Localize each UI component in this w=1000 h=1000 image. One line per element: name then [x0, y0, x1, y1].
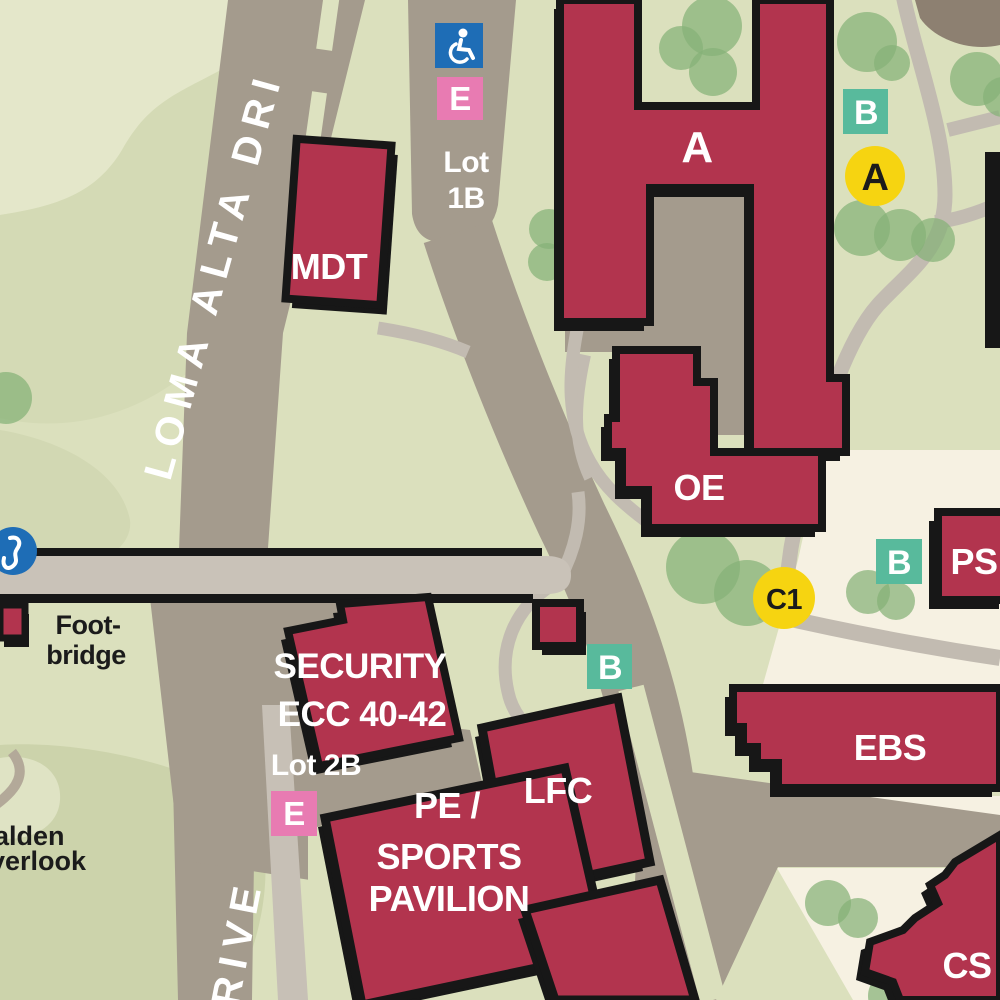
footbridge-rail-south [0, 594, 533, 603]
stop-c1-label: C1 [766, 584, 802, 616]
footbridge-label-2: bridge [46, 640, 126, 670]
building-partial-east [985, 152, 1000, 348]
tree [877, 582, 915, 620]
overlook-label-2: verlook [0, 846, 87, 876]
building-label-mdt: MDT [291, 246, 368, 287]
footbridge-rail-north [0, 548, 542, 556]
tree [838, 898, 878, 938]
footbridge-deck [0, 556, 571, 594]
building-label-security-2: ECC 40-42 [278, 695, 447, 734]
building-mdt [286, 139, 398, 315]
building-label-pavilion-2: SPORTS [376, 836, 521, 877]
stop-a-label: A [862, 157, 889, 199]
accessible-parking-badge [435, 23, 483, 68]
tree [874, 45, 910, 81]
permit-e-badge-lot2b: E [271, 791, 317, 836]
building-label-security-1: SECURITY [274, 647, 447, 686]
building-label-ebs: EBS [854, 727, 927, 768]
building-stub-west-body [0, 605, 25, 638]
building-label-lfc: LFC [524, 770, 593, 811]
building-label-a: A [681, 123, 712, 172]
building-stub-west [0, 605, 29, 647]
permit-e-label: E [449, 80, 471, 117]
stop-b-badge-north: B [843, 89, 888, 134]
stop-b-label: B [854, 94, 878, 132]
stop-a-badge: A [845, 146, 905, 206]
building-label-pavilion-3: PAVILION [369, 878, 530, 919]
tree [689, 48, 737, 96]
wheelchair-icon-head [459, 29, 468, 38]
campus-map[interactable]: MDT A OE PS EBS CS LFC SECURITY ECC 40-4… [0, 0, 1000, 1000]
lot-2b-label: Lot 2B [271, 749, 361, 782]
tree [911, 218, 955, 262]
building-label-ps: PS [950, 541, 997, 582]
stop-b-badge-center: B [587, 644, 632, 689]
stop-c1-badge: C1 [753, 567, 815, 629]
footbridge-label-1: Foot- [56, 610, 121, 640]
permit-e-label: E [283, 795, 305, 832]
lot-1b-label-1: Lot [443, 146, 489, 179]
stop-b-badge-east: B [876, 539, 922, 584]
permit-e-badge-lot1b: E [437, 77, 483, 120]
stop-b-label: B [598, 649, 622, 687]
stop-b-label: B [887, 544, 911, 582]
building-small-square [536, 603, 586, 655]
lot-1b-label-2: 1B [447, 182, 484, 215]
building-small-square-body [536, 603, 580, 646]
building-label-cs: CS [942, 945, 991, 986]
building-label-oe: OE [673, 467, 724, 508]
building-label-pavilion-1: PE / [414, 785, 481, 826]
